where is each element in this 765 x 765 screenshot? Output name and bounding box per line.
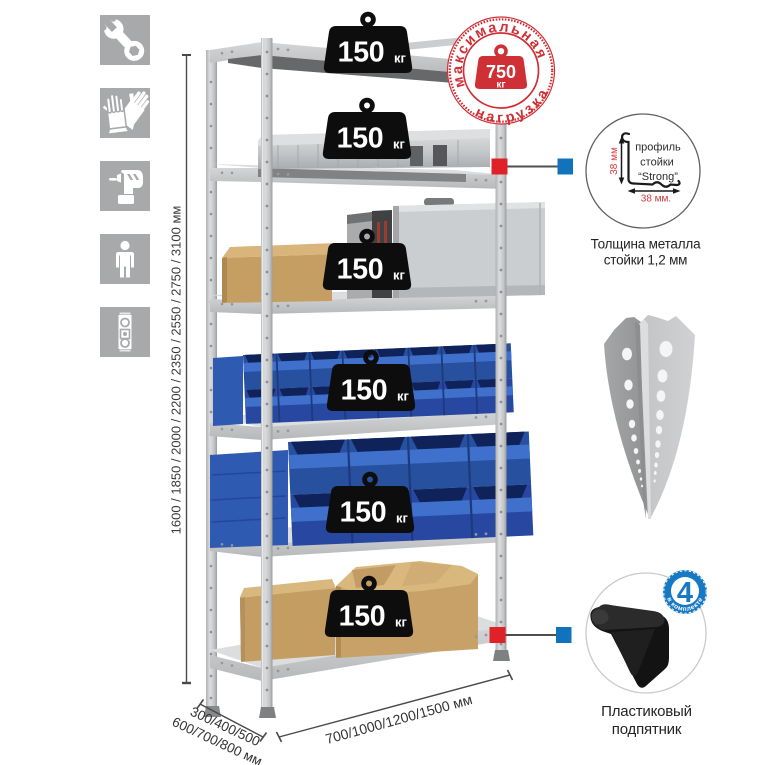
svg-text:38 мм: 38 мм bbox=[609, 147, 620, 175]
svg-text:4: 4 bbox=[677, 577, 693, 609]
svg-text:38 мм.: 38 мм. bbox=[641, 194, 671, 205]
svg-text:подпятник: подпятник bbox=[612, 721, 682, 738]
svg-text:Пластиковый: Пластиковый bbox=[601, 703, 692, 720]
svg-text:1600 / 1850 / 2000 / 2200 / 23: 1600 / 1850 / 2000 / 2200 / 2350 / 2550 … bbox=[169, 206, 184, 535]
svg-text:кг: кг bbox=[496, 80, 505, 91]
svg-text:“Strong”: “Strong” bbox=[638, 171, 678, 183]
svg-text:стойки 1,2 мм: стойки 1,2 мм bbox=[604, 253, 688, 268]
svg-text:стойки: стойки bbox=[640, 157, 674, 169]
svg-text:профиль: профиль bbox=[635, 142, 681, 154]
svg-text:Толщина металла: Толщина металла bbox=[591, 237, 701, 252]
